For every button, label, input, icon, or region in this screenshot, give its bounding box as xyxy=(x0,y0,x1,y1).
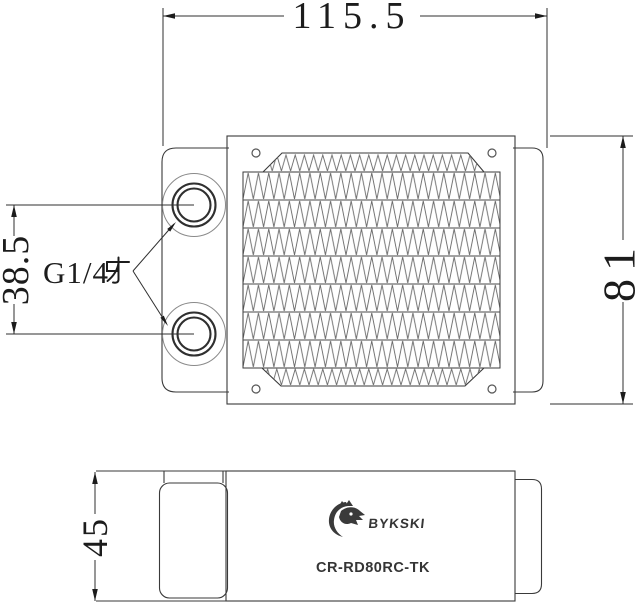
dim-port-spacing-value: 38.5 xyxy=(0,235,37,306)
leader-top xyxy=(133,224,174,271)
dimension-port-spacing: 38.5 xyxy=(0,205,37,334)
model-number-text: CR-RD80RC-TK xyxy=(316,560,430,576)
thread-label-text: G1/4 xyxy=(43,255,109,290)
ya-character xyxy=(107,258,129,283)
dim-width-value: 115.5 xyxy=(292,0,411,37)
drawing-canvas: 115.5 81 38.5 G1/4 xyxy=(0,0,640,606)
dimension-thickness: 45 xyxy=(75,472,115,601)
dim-height-value: 81 xyxy=(594,240,640,302)
side-right-tab xyxy=(515,480,542,594)
dimension-width: 115.5 xyxy=(163,0,547,148)
right-tank-outline xyxy=(513,148,543,392)
brand-name-text: BYKSKI xyxy=(368,516,427,531)
screw-hole-bottom-left xyxy=(252,385,260,393)
radiator-technical-drawing: 115.5 81 38.5 G1/4 xyxy=(0,0,640,606)
screw-hole-top-left xyxy=(252,149,260,157)
top-window-fins xyxy=(263,153,484,172)
dimension-height: 81 xyxy=(550,136,640,404)
thread-label-group: G1/4 xyxy=(43,222,176,326)
fin-core xyxy=(243,172,500,368)
dragon-head-logo-icon xyxy=(329,500,365,537)
side-body xyxy=(226,471,515,601)
leader-bottom xyxy=(133,271,166,323)
brand-logo: BYKSKI xyxy=(329,500,426,537)
side-view: BYKSKI CR-RD80RC-TK xyxy=(96,471,542,601)
side-left-tank xyxy=(160,483,228,598)
screw-hole-bottom-right xyxy=(488,385,496,393)
dim-thickness-value: 45 xyxy=(75,517,115,557)
screw-hole-top-right xyxy=(488,149,496,157)
bottom-window-fins xyxy=(262,368,484,386)
